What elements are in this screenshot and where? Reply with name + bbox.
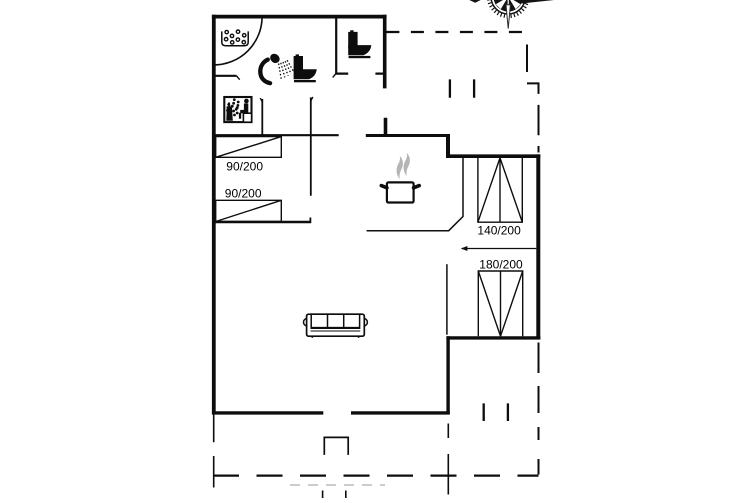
svg-text:90/200: 90/200 — [225, 186, 262, 200]
svg-text:90/200: 90/200 — [226, 160, 263, 174]
svg-text:180/200: 180/200 — [479, 258, 523, 272]
svg-text:140/200: 140/200 — [477, 224, 521, 238]
